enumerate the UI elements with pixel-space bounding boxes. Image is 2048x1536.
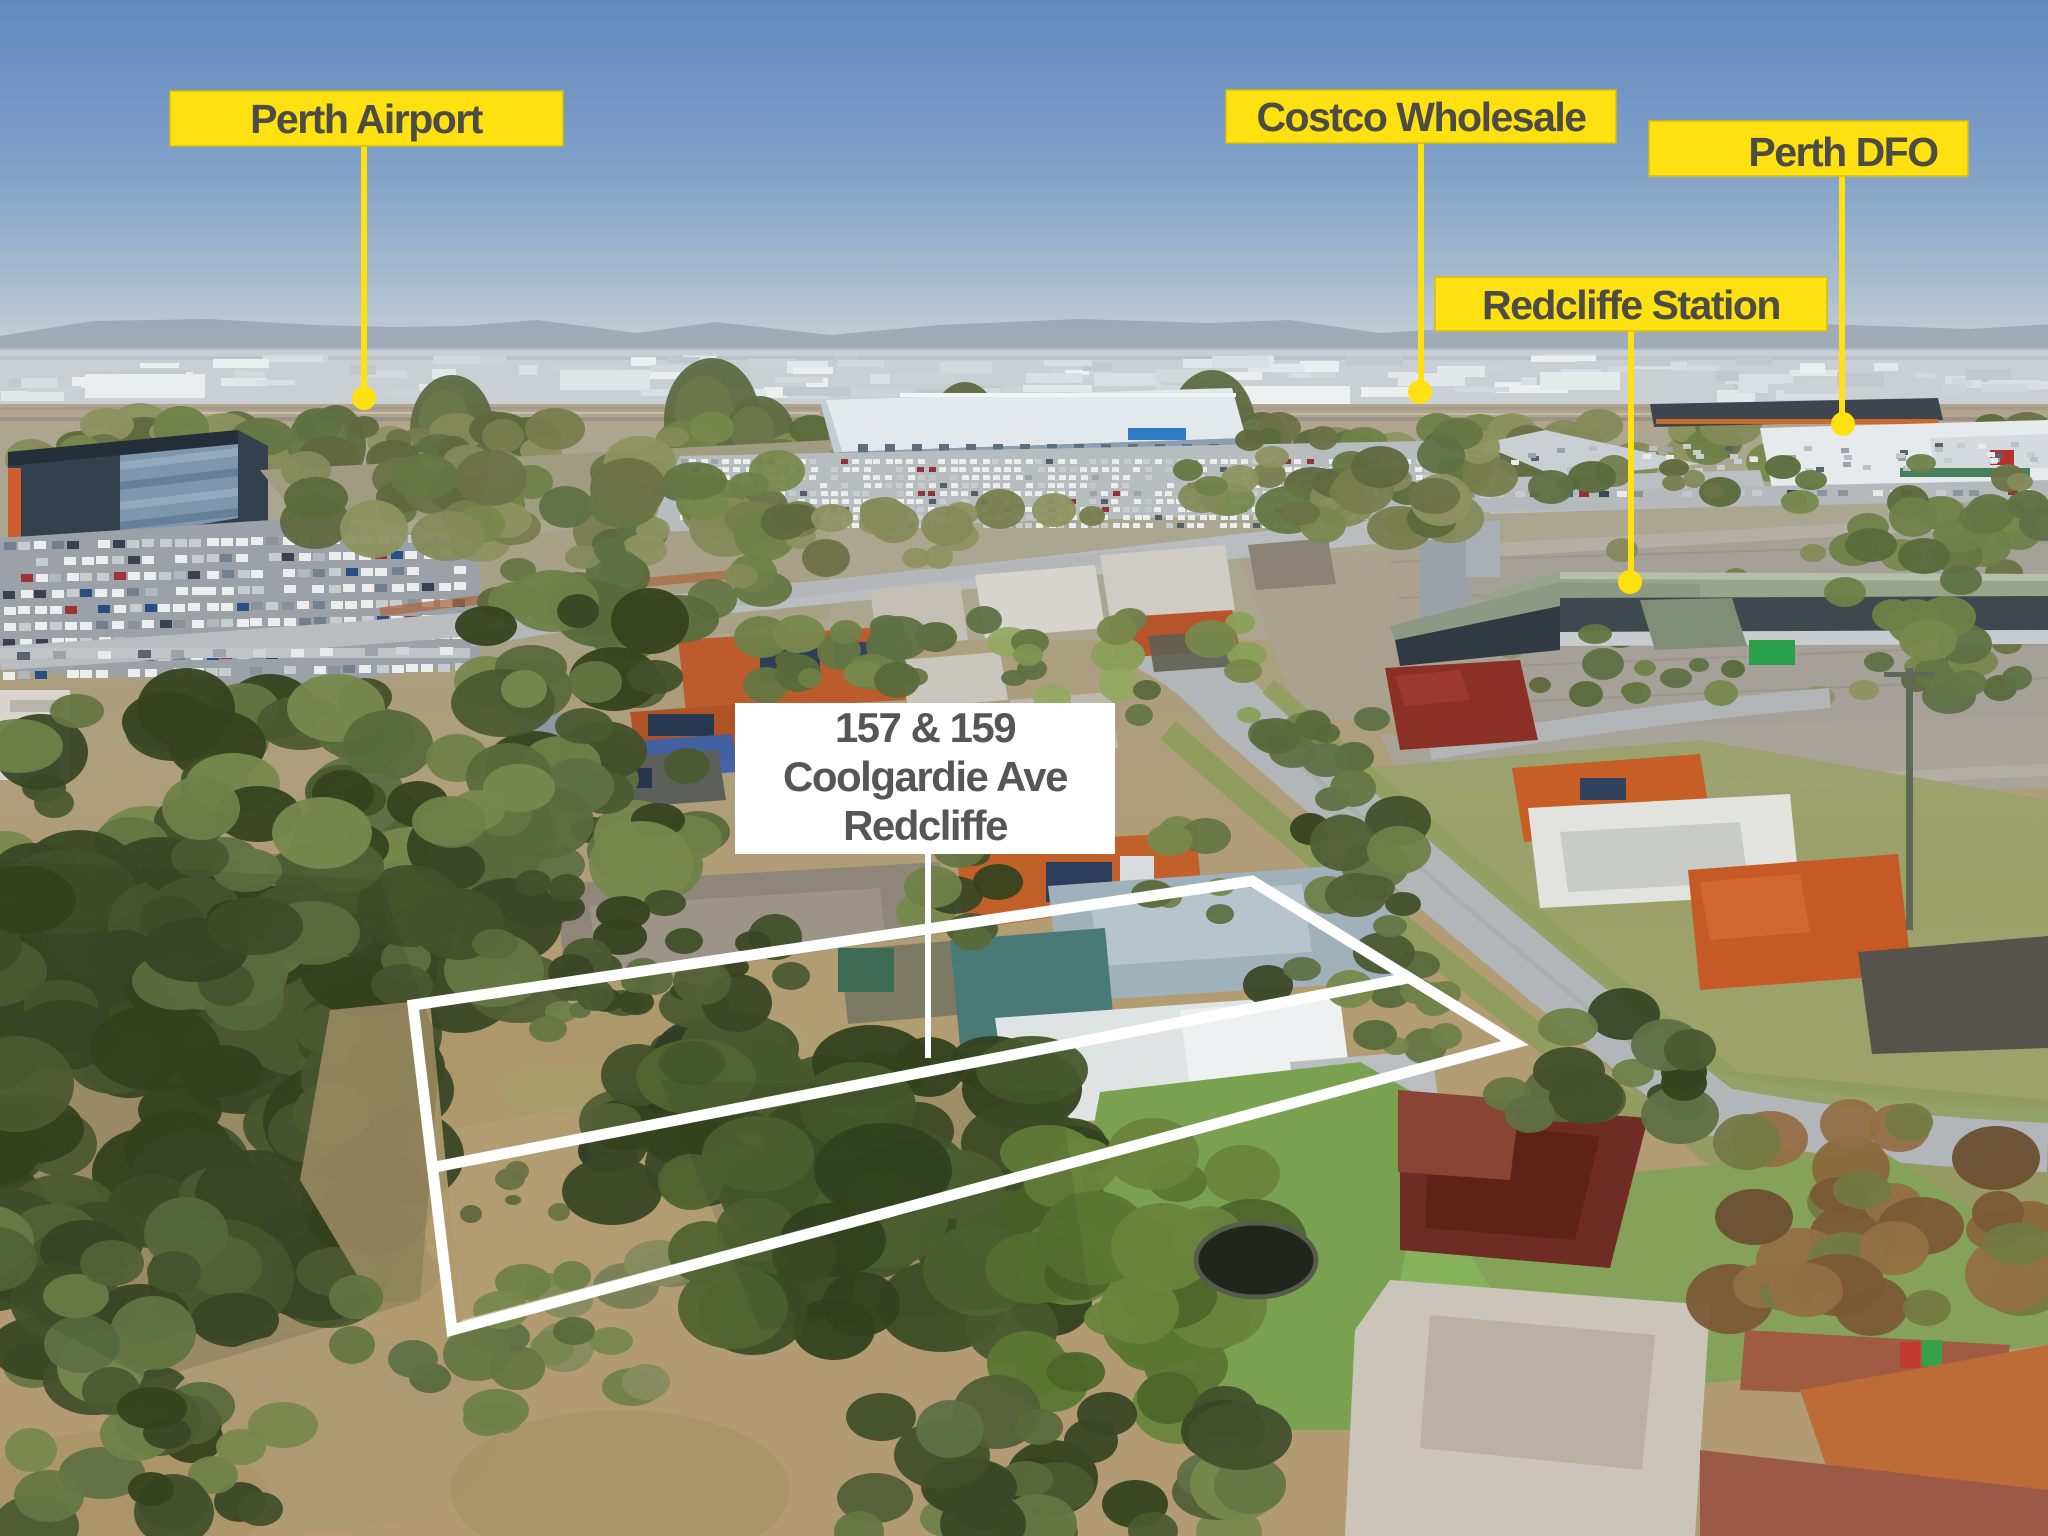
svg-text:Perth Airport: Perth Airport	[250, 96, 484, 142]
svg-text:Costco Wholesale: Costco Wholesale	[1256, 94, 1586, 140]
svg-text:Perth DFO: Perth DFO	[1748, 129, 1938, 175]
svg-text:Redcliffe: Redcliffe	[843, 802, 1007, 849]
svg-text:157 & 159: 157 & 159	[835, 704, 1015, 751]
svg-text:Redcliffe Station: Redcliffe Station	[1482, 282, 1780, 328]
svg-text:Coolgardie Ave: Coolgardie Ave	[783, 753, 1067, 800]
